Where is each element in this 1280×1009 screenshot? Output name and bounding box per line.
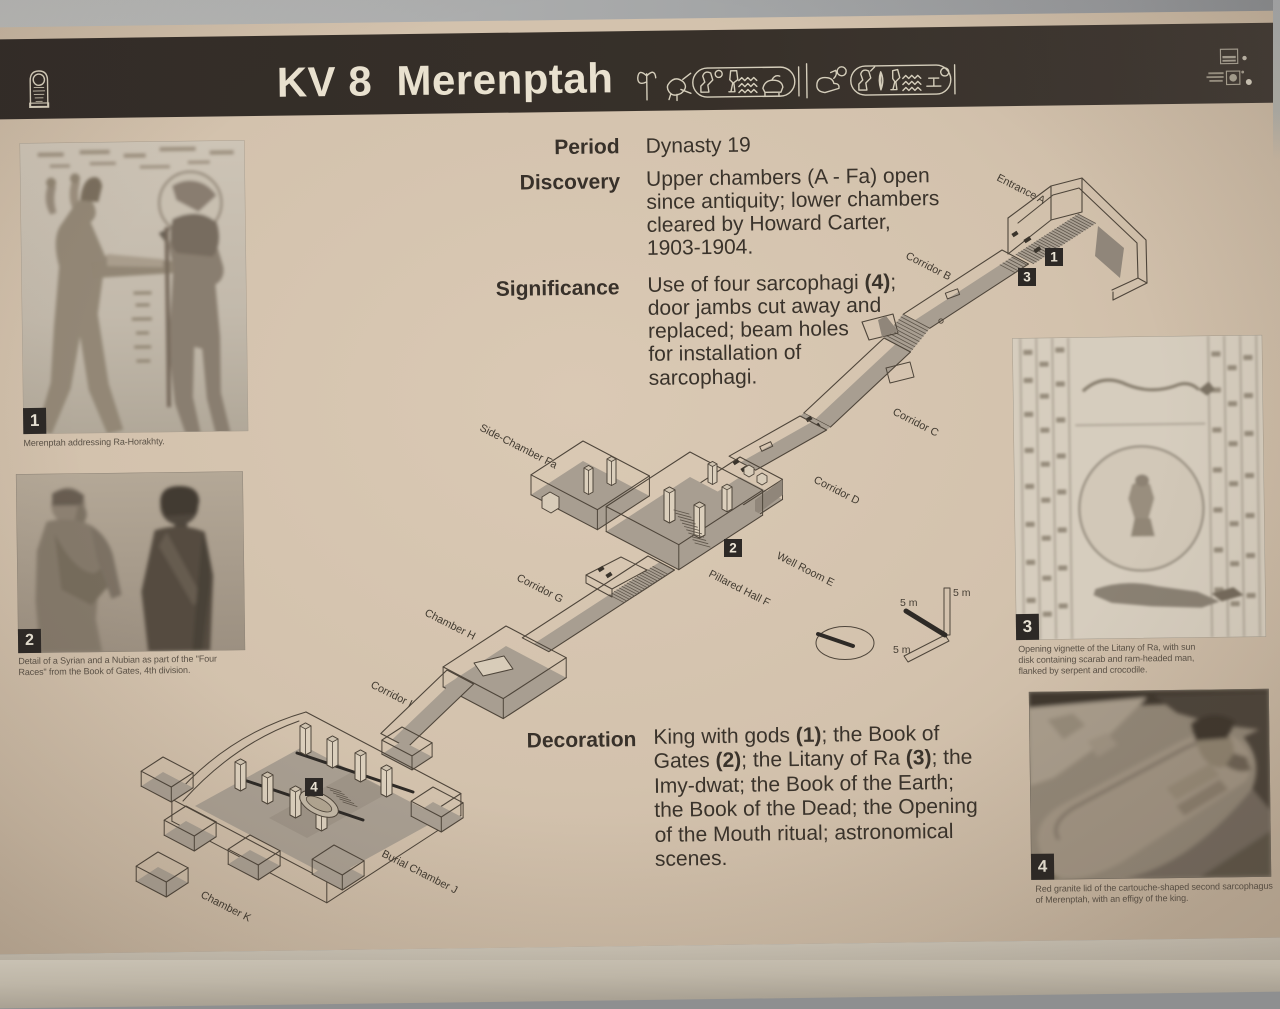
svg-text:Side-Chamber Fa: Side-Chamber Fa: [478, 422, 559, 471]
svg-text:Chamber K: Chamber K: [199, 889, 254, 925]
svg-text:5 m: 5 m: [900, 597, 918, 609]
svg-text:4: 4: [310, 780, 318, 795]
svg-text:Entrance A: Entrance A: [995, 172, 1048, 207]
svg-text:Corridor G: Corridor G: [515, 572, 565, 606]
svg-text:5 m: 5 m: [893, 644, 911, 656]
svg-text:Chamber H: Chamber H: [423, 607, 478, 643]
svg-text:Corridor B: Corridor B: [904, 250, 953, 283]
svg-text:Pillared Hall F: Pillared Hall F: [707, 568, 773, 609]
svg-text:1: 1: [1050, 250, 1058, 265]
svg-text:2: 2: [729, 541, 737, 556]
svg-text:3: 3: [1023, 270, 1031, 285]
svg-text:Corridor D: Corridor D: [812, 474, 862, 507]
svg-text:Well Room E: Well Room E: [775, 550, 836, 589]
svg-text:Corridor I: Corridor I: [369, 679, 415, 710]
svg-text:5 m: 5 m: [953, 587, 971, 599]
svg-text:Burial Chamber J: Burial Chamber J: [380, 848, 460, 897]
svg-text:Corridor C: Corridor C: [891, 406, 941, 439]
